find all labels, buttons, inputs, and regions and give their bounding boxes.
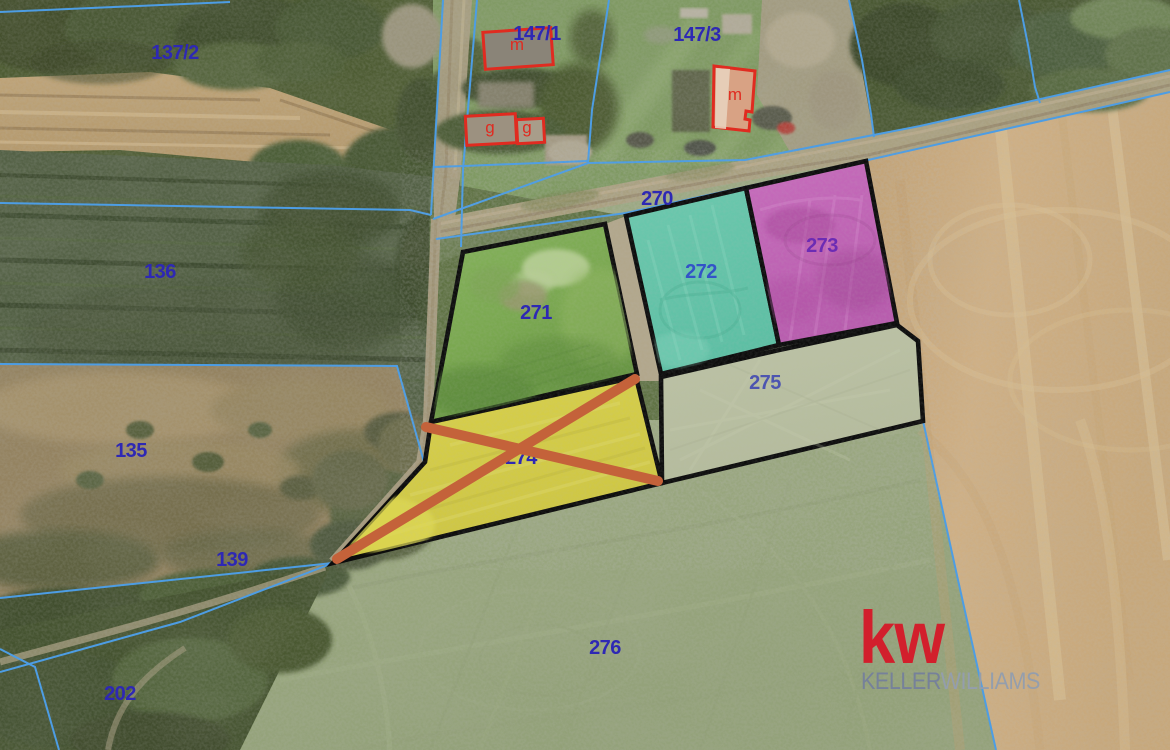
svg-text:273: 273 [806, 235, 838, 257]
svg-text:147/3: 147/3 [673, 24, 721, 46]
svg-text:g: g [485, 118, 494, 137]
svg-text:272: 272 [685, 261, 717, 283]
svg-text:kw: kw [859, 596, 946, 679]
svg-text:KELLERWILLIAMS: KELLERWILLIAMS [861, 668, 1040, 695]
svg-text:135: 135 [115, 440, 147, 462]
svg-text:276: 276 [589, 637, 621, 659]
svg-text:m: m [510, 35, 524, 54]
svg-text:137/2: 137/2 [151, 42, 199, 64]
svg-text:275: 275 [749, 372, 781, 394]
svg-text:270: 270 [641, 188, 673, 210]
svg-text:136: 136 [144, 261, 176, 283]
svg-text:139: 139 [216, 549, 248, 571]
svg-text:202: 202 [104, 683, 136, 705]
svg-text:m: m [728, 85, 742, 104]
svg-text:g: g [522, 118, 531, 137]
svg-text:271: 271 [520, 302, 552, 324]
